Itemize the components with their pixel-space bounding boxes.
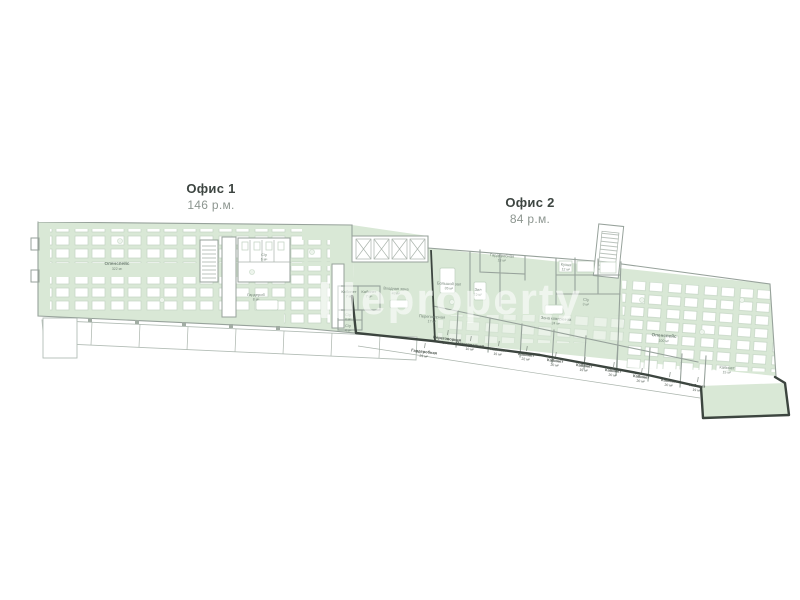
svg-text:322 м²: 322 м² [112,267,123,271]
floor-plan-page: Офис 1 146 р.м. Офис 2 84 р.м. [0,0,800,600]
svg-text:7 м²: 7 м² [346,295,353,299]
svg-text:10 м²: 10 м² [465,347,474,352]
svg-text:43 м²: 43 м² [392,291,401,295]
svg-text:17 м²: 17 м² [427,319,436,323]
room-label: С/у6 м² [261,252,268,262]
svg-text:10 м²: 10 м² [442,341,451,346]
svg-text:Опенспейс: Опенспейс [105,260,130,266]
svg-text:24 м²: 24 м² [551,321,561,326]
svg-text:13 м²: 13 м² [497,258,507,263]
callout-label: Кабинет20 м² [632,367,650,384]
office1-capacity: 146 р.м. [166,198,256,212]
corridor [222,237,236,317]
svg-text:С/у: С/у [345,323,351,328]
svg-text:12 м²: 12 м² [561,267,571,272]
svg-text:20 м²: 20 м² [608,373,617,378]
floor-plan-svg: Опенспейс322 м² Гардероб8 м² С/у6 м² Каб… [0,0,800,600]
svg-text:20 м²: 20 м² [550,363,559,368]
svg-text:22 м²: 22 м² [521,357,530,362]
svg-text:35 м²: 35 м² [444,286,453,290]
office2-title: Офис 2 [485,195,575,210]
svg-text:С/у: С/у [261,252,267,257]
office1-label: Офис 1 146 р.м. [166,181,256,212]
svg-text:8 м²: 8 м² [253,298,260,302]
callout-label: Кабинет20 м² [660,371,678,388]
svg-text:7 м²: 7 м² [366,295,373,299]
svg-text:4 м²: 4 м² [345,318,352,322]
room-label: С/у4 м² [345,323,352,333]
stair-steps-icon [202,243,216,279]
svg-text:15 м²: 15 м² [473,292,482,296]
svg-text:4 м²: 4 м² [345,329,352,333]
svg-text:Гардероб: Гардероб [247,292,265,297]
svg-text:23 м²: 23 м² [419,354,428,359]
svg-text:19 м²: 19 м² [692,388,701,393]
office2-label: Офис 2 84 р.м. [485,195,575,226]
office1-title: Офис 1 [166,181,256,196]
svg-text:15 м²: 15 м² [579,368,588,373]
svg-text:6 м²: 6 м² [261,258,268,262]
office2-capacity: 84 р.м. [485,212,575,226]
svg-text:3 м²: 3 м² [582,302,590,307]
room-label: Кухня12 м² [560,262,571,272]
svg-text:100 м²: 100 м² [658,339,669,344]
svg-text:20 м²: 20 м² [664,383,673,388]
svg-text:С/у: С/у [345,312,351,317]
svg-text:20 м²: 20 м² [636,379,645,384]
room-label: С/у4 м² [345,312,352,322]
callout-label: Кабинет20 м² [604,361,622,378]
svg-text:Кабинет: Кабинет [341,289,356,294]
svg-text:Кабинет: Кабинет [361,289,376,294]
svg-text:15 м²: 15 м² [493,352,502,357]
svg-text:15 м²: 15 м² [722,370,732,375]
elevator-bank [352,236,428,262]
